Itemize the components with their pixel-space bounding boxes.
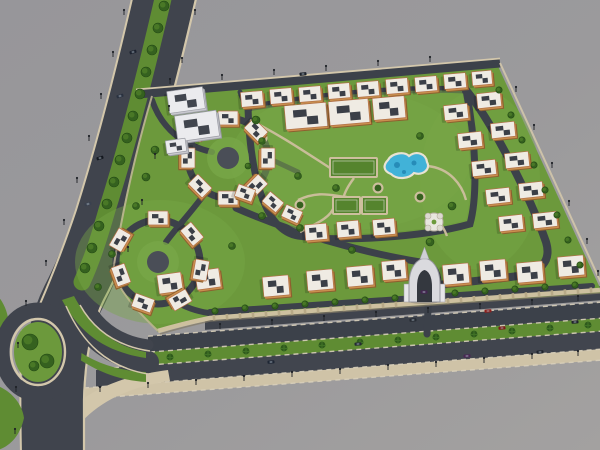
street-lamp-head [181,57,183,59]
roof-bulkhead [523,186,531,191]
car-window [539,351,542,353]
street-lamp-head [483,357,485,359]
tree-highlight [542,187,546,191]
roof-bulkhead [476,74,483,79]
aerial-render-stage [0,0,600,450]
street-lamp-head [429,56,431,58]
car-window [357,343,360,345]
tree-highlight [496,87,500,91]
roof-bulkhead [303,90,310,95]
street-lamp-head [127,246,129,248]
street-lamp-head [586,238,588,240]
planter-tree [417,194,424,201]
street-lamp-head [147,382,149,384]
pool-deep-spot [402,170,406,174]
street-lamp-head [291,371,293,373]
wall-post [447,298,450,304]
car [354,342,361,346]
tree-highlight [482,288,486,292]
roof-bulkhead [293,109,307,117]
tree-highlight [136,90,142,96]
tree-highlight [24,336,33,345]
street-lamp-head [515,86,517,88]
pool-deep-spot [394,162,400,168]
wall-post [265,311,268,317]
gate-pylon [440,284,445,302]
street-lamp-head [479,303,481,305]
tree-highlight [242,305,246,309]
roof-bulkhead [386,265,394,271]
roof-bulkhead [490,192,498,197]
street-lamp-head [271,319,273,321]
street-lamp-head [195,379,197,381]
roof-bulkhead [263,158,268,163]
roof-bulkhead [332,87,339,92]
planter-tree [297,202,304,209]
roof-bulkhead [339,91,345,97]
apartment-building [325,98,372,129]
wall-post [499,294,502,300]
roof-bulkhead [485,264,494,271]
tree-highlight [554,212,558,216]
roof-bulkhead [377,222,384,227]
apartment-building [369,218,398,239]
tree-highlight [297,225,301,229]
street-lamp-head [533,124,535,126]
car [299,72,306,76]
wall-post [330,306,333,312]
roof-bulkhead [252,99,258,105]
wall-post [551,290,554,296]
tree-highlight [427,239,431,243]
roof-bulkhead [309,227,316,232]
apartment-building [382,77,411,97]
roof-bulkhead [494,270,501,277]
street-lamp-head [194,9,196,11]
roof-bulkhead [187,99,197,108]
car [536,350,543,354]
roof-bulkhead [341,224,348,229]
roof-bulkhead [448,108,456,113]
sports-court [333,197,360,214]
wall-post [486,295,489,301]
wall-post [291,309,294,315]
roof-bulkhead [361,276,368,283]
apartment-building [515,181,546,202]
tree-highlight [362,297,366,301]
roof-bulkhead [361,85,368,90]
tree-highlight [295,173,299,177]
car-window [270,361,273,363]
street-lamp-head [219,323,221,325]
wall-post [525,292,528,298]
street-lamp-head [25,300,27,302]
street-lamp-head [169,78,171,80]
cluster-court-center [147,251,169,273]
roof-bulkhead [546,220,553,226]
roof-bulkhead [522,266,531,273]
roof-bulkhead [268,152,272,158]
tree-highlight [95,284,99,288]
cluster-court-center [217,147,239,169]
street-lamp-head [112,51,114,53]
wall-post [564,289,567,295]
street-lamp-head [168,105,170,107]
street-lamp-head [17,342,19,344]
car-window [501,327,504,329]
roof-bulkhead [336,105,349,113]
street-lamp-head [387,364,389,366]
roof-bulkhead [504,130,511,136]
tree-highlight [152,147,156,151]
tree-highlight [95,222,101,228]
gazebo-wing [425,213,431,219]
street-lamp-head [14,428,16,430]
street-lamp-head [99,386,101,388]
roof-bulkhead [462,136,470,141]
apartment-building [476,259,509,284]
roof-bulkhead [490,100,497,106]
apartment-building [259,275,292,300]
wall-post [356,304,359,310]
tree-highlight [109,251,113,255]
apartment-building [369,95,408,123]
roof-bulkhead [481,96,489,101]
roof-bulkhead [348,229,354,235]
roof-bulkhead [499,196,506,202]
wall-post [226,314,229,320]
street-lamp-head [551,162,553,164]
roof-bulkhead [228,198,233,203]
street-lamp-head [435,361,437,363]
roof-bulkhead [268,280,277,287]
roof-bulkhead [419,80,426,85]
roof-bulkhead [426,84,432,90]
car-window [487,310,490,312]
apartment-building [411,75,440,95]
tree-highlight [302,301,306,305]
tree-highlight [512,286,516,290]
roof-bulkhead [350,112,361,121]
tree-highlight [81,264,87,270]
roof-bulkhead [307,115,319,124]
tree-highlight [148,46,154,52]
tree-highlight [41,355,49,363]
street-lamp-head [568,200,570,202]
roof-bulkhead [195,270,201,276]
wall-post [317,307,320,313]
roof-bulkhead [171,282,178,289]
street-lamp-head [100,93,102,95]
car-window [412,319,415,321]
street-lamp-head [375,311,377,313]
street-lamp-head [243,375,245,377]
apartment-building [281,102,330,133]
roof-bulkhead [518,160,525,166]
tree-highlight [142,68,148,74]
roof-bulkhead [495,126,503,131]
tree-highlight [116,156,122,162]
apartment-building [353,80,382,100]
compound-aerial-render [0,0,600,450]
street-lamp-head [325,65,327,67]
sports-court [362,197,387,214]
apartment-building [487,121,518,142]
roof-bulkhead [312,274,321,281]
roof-bulkhead [316,232,322,238]
tree-highlight [253,117,257,121]
apartment-building [440,103,471,124]
roof-bulkhead [537,216,545,221]
gate-opening [417,270,432,302]
street-lamp-head [141,199,143,201]
tree-highlight [160,2,166,8]
roof-bulkhead [503,219,511,224]
pool-deep-spot [412,161,417,166]
wall-post [252,312,255,318]
apartment-building [473,91,504,112]
roof-bulkhead [209,278,216,285]
apartment-building [468,70,495,89]
tree-highlight [452,290,456,294]
wall-post [395,302,398,308]
car [267,360,274,364]
car [409,318,416,322]
roof-bulkhead [531,272,538,279]
tree-highlight [519,137,523,141]
street-lamp-head [221,74,223,76]
tree-highlight [143,174,147,178]
roof-bulkhead [274,92,281,97]
gazebo-wing [437,213,443,219]
roof-bulkhead [198,125,210,135]
roof-bulkhead [152,214,158,218]
roof-bulkhead [448,77,455,82]
street-lamp-head [15,386,17,388]
roof-bulkhead [384,227,390,233]
tree-highlight [531,162,535,166]
roof-bulkhead [183,158,188,163]
apartment-building [378,259,409,283]
wall-post [304,308,307,314]
lagoon-pool [385,153,428,178]
street-lamp-head [76,177,78,179]
street-lamp-head [531,299,533,301]
roof-bulkhead [310,94,316,100]
tree-highlight [154,24,160,30]
car [421,290,428,293]
roof-bulkhead [222,114,228,118]
tree-highlight [129,112,135,118]
tree-highlight [30,362,36,368]
apartment-building [145,211,170,228]
car-window [302,73,305,75]
street-lamp-head [154,153,156,155]
wall-post [577,288,580,294]
tree-highlight [103,200,109,206]
tree-highlight [417,133,421,137]
roof-bulkhead [176,145,182,150]
wall-post [538,291,541,297]
roof-bulkhead [395,270,402,277]
tree-highlight [349,247,353,251]
tree-highlight [259,213,263,217]
apartment-building [495,214,526,235]
roof-bulkhead [158,218,163,223]
wall-post [369,303,372,309]
roof-bulkhead [482,78,488,83]
tree-highlight [229,243,233,247]
roof-bulkhead [455,81,461,87]
roof-bulkhead [397,86,403,92]
street-lamp-head [88,135,90,137]
car-window [423,291,426,293]
roof-bulkhead [390,82,397,87]
tree-highlight [449,203,453,207]
apartment-building [266,87,295,107]
roof-bulkhead [245,95,252,100]
roof-bulkhead [390,108,399,116]
tree-highlight [110,178,116,184]
apartment-building [303,269,336,294]
roof-bulkhead [277,286,284,293]
tree-highlight [259,138,263,142]
street-lamp-head [597,270,599,272]
street-lamp-head [45,260,47,262]
street-lamp-head [377,60,379,62]
gazebo-wing [425,225,431,231]
apartment-building [513,261,546,286]
tree-highlight [572,282,576,286]
wall-post [590,287,593,293]
roof-bulkhead [321,280,328,287]
roof-bulkhead [379,102,390,109]
roof-bulkhead [509,156,517,161]
apartment-building [301,223,330,244]
tree-highlight [508,112,512,116]
apartment-building [237,90,266,110]
tree-highlight [88,244,94,250]
street-lamp-head [63,219,65,221]
tree-highlight [577,262,581,266]
apartment-building [440,72,469,92]
street-lamp-head [577,350,579,352]
tree-highlight [332,299,336,303]
street-lamp-head [577,295,579,297]
roof-bulkhead [485,168,492,174]
apartment-building [343,265,376,290]
gate-pylon [404,284,409,302]
wall-post [382,303,385,309]
roof-bulkhead [512,223,519,229]
roof-bulkhead [222,194,228,198]
car [571,320,578,324]
gazebo-wing [437,225,443,231]
tree-highlight [246,164,249,167]
roof-bulkhead [563,260,572,267]
street-lamp-head [531,353,533,355]
tree-highlight [123,134,129,140]
roof-bulkhead [162,278,170,285]
roof-bulkhead [532,190,539,196]
tree-highlight [542,284,546,288]
wall-post [343,305,346,311]
roof-bulkhead [457,112,464,118]
gazebo-center [432,220,437,225]
roof-bulkhead [228,118,233,123]
roof-bulkhead [471,140,478,146]
apartment-building [454,131,485,152]
car-window [574,321,577,323]
street-lamp-head [339,368,341,370]
roof-bulkhead [476,164,484,169]
roof-bulkhead [368,89,374,95]
roundabout-island [14,322,62,382]
tree-highlight [565,237,569,241]
street-lamp-head [427,307,429,309]
apartment-building [468,159,499,180]
tree-highlight [272,303,276,307]
wall-post [473,296,476,302]
tree-highlight [133,203,137,207]
wall-post [278,310,281,316]
apartment-building [324,82,353,102]
tree-highlight [392,295,396,299]
street-lamp-head [123,9,125,11]
apartment-building [258,145,275,170]
car [484,309,491,313]
tree-highlight [333,185,337,189]
wall-post [512,293,515,299]
roof-bulkhead [281,96,287,102]
apartment-building [501,151,532,172]
wall-post [213,315,216,321]
tree-highlight [212,308,216,312]
planter-tree [375,185,382,192]
roof-bulkhead [457,274,464,281]
car [463,354,470,358]
apartment-building [482,187,513,208]
street-lamp-head [323,315,325,317]
street-lamp-head [273,69,275,71]
roof-bulkhead [448,268,457,275]
wall-post [239,313,242,319]
wall-post [460,297,463,303]
roof-bulkhead [352,270,361,277]
car-window [466,355,469,357]
apartment-building [333,220,362,241]
car [498,326,505,330]
